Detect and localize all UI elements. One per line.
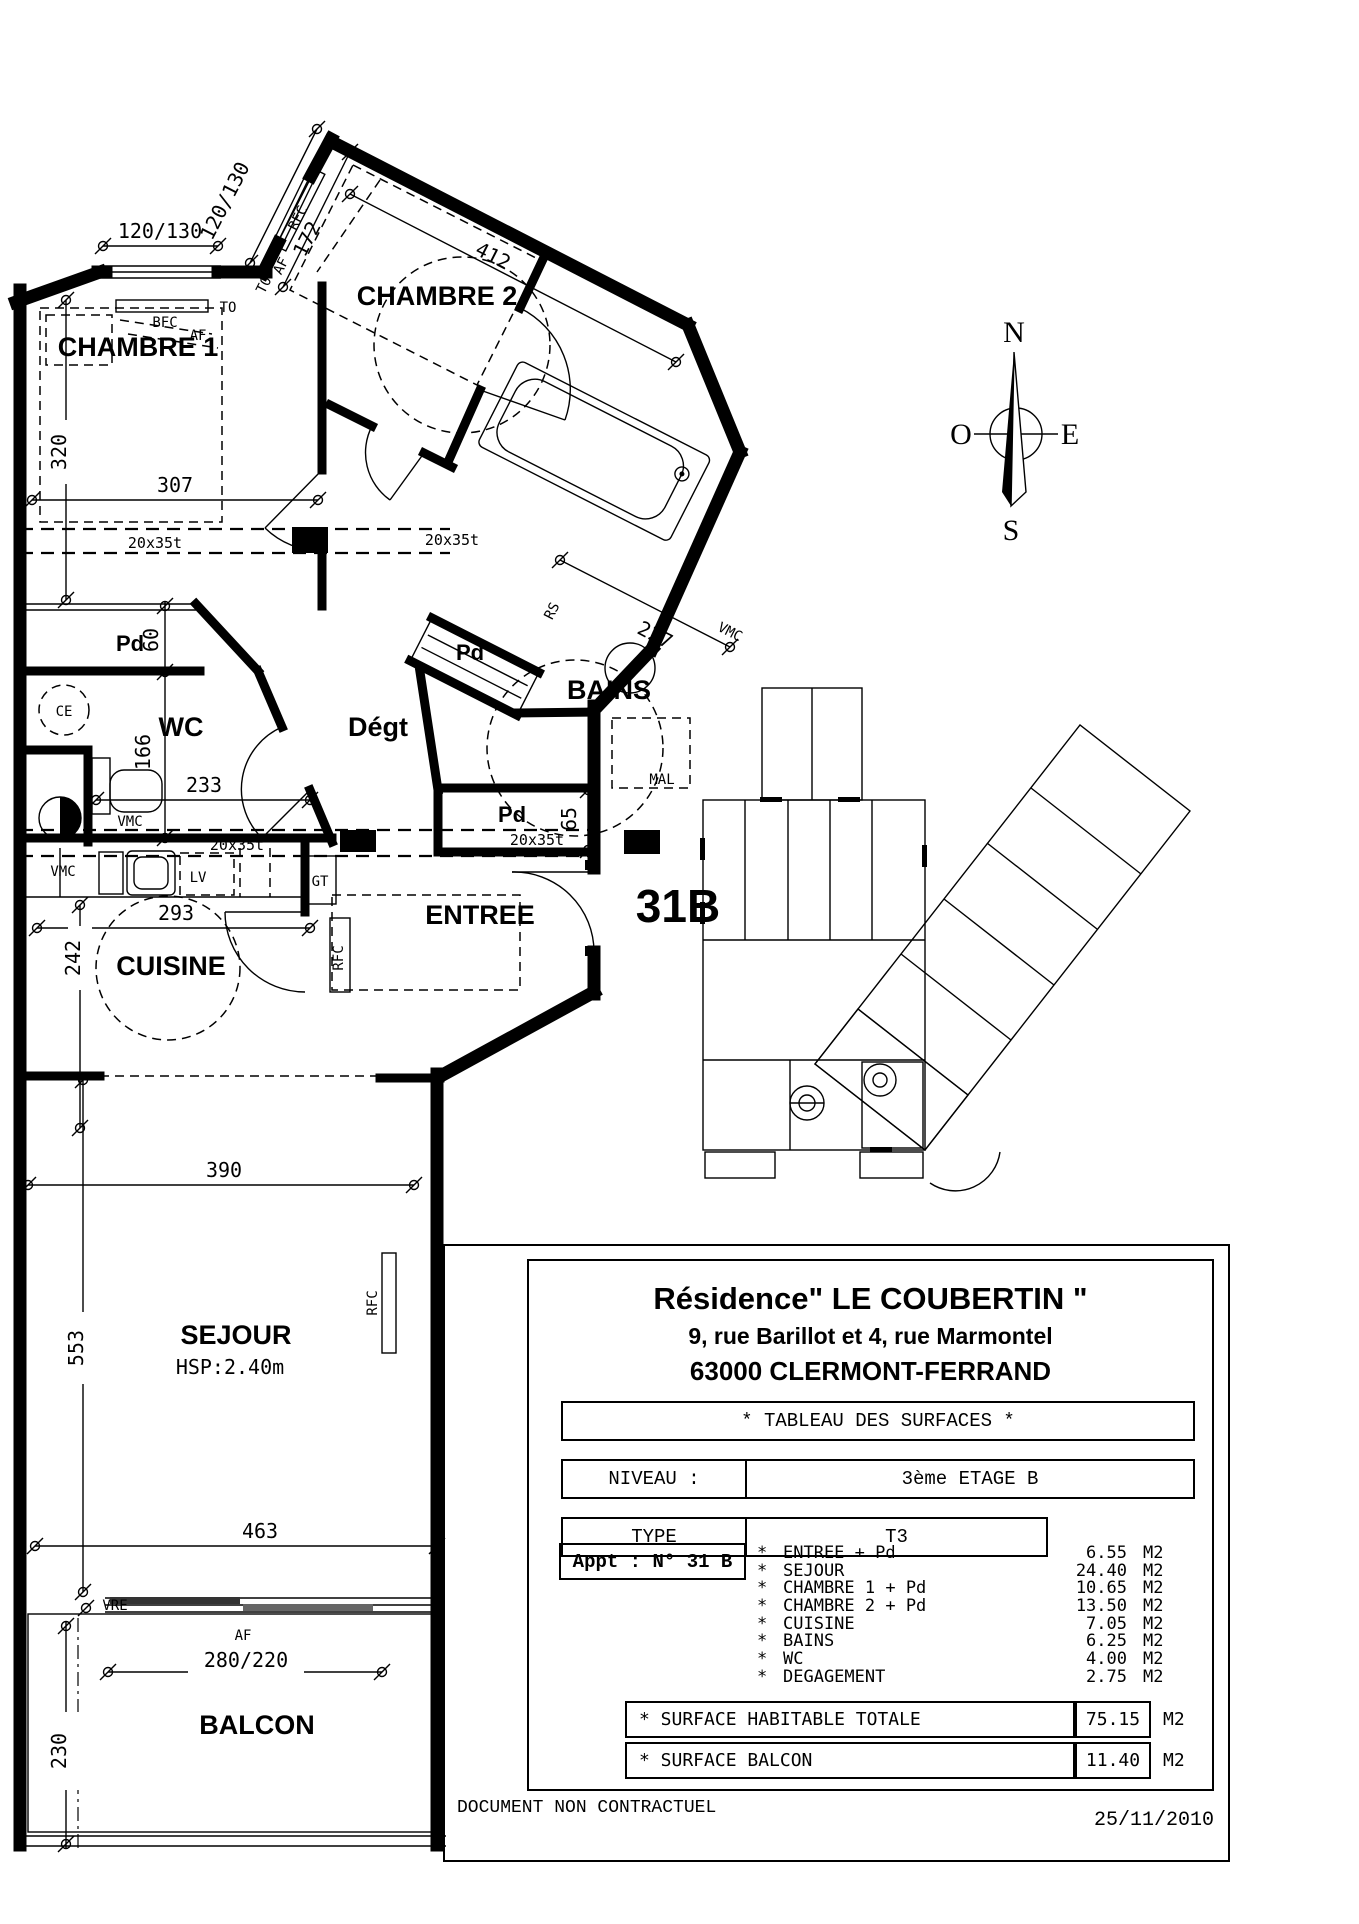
note-lv: LV: [190, 870, 207, 886]
niveau-value: 3ème ETAGE B: [747, 1468, 1193, 1490]
dim-320: 320: [47, 434, 71, 470]
compass-east: E: [1061, 418, 1079, 451]
apartment-number-box: Appt : N° 31 B: [559, 1543, 746, 1580]
room-label-chambre2: CHAMBRE 2: [357, 281, 518, 311]
note-bfc: BFC: [152, 315, 177, 331]
furniture: [40, 165, 663, 1040]
surfaces-table-header: * TABLEAU DES SURFACES *: [561, 1401, 1195, 1441]
apartment-number-label: Appt : N° 31 B: [573, 1551, 733, 1573]
room-label-wc: WC: [159, 712, 204, 742]
note-mal: MAL: [649, 772, 674, 788]
compass-west: O: [950, 418, 972, 451]
apartment-number: 31B: [636, 880, 720, 932]
dim-242: 242: [61, 940, 85, 976]
residence-name: Résidence" LE COUBERTIN ": [529, 1281, 1212, 1317]
dim-390: 390: [206, 1158, 242, 1182]
windows: [78, 168, 437, 1616]
note-to-chambre1: TO: [220, 300, 237, 316]
room-label-balcon: BALCON: [199, 1710, 315, 1740]
room-surface-list: * ENTREE + Pd 6.55 M2 * SEJOUR 24.40 M2 …: [757, 1545, 1185, 1687]
room-label-chambre1: CHAMBRE 1: [58, 332, 219, 362]
total-habitable-unit: M2: [1163, 1709, 1185, 1730]
total-balcon-unit: M2: [1163, 1750, 1185, 1771]
note-vmc-cuisine: VMC: [50, 864, 75, 880]
row-label: BAINS: [783, 1633, 1065, 1651]
room-label-sejour-height: HSP:2.40m: [176, 1355, 284, 1379]
note-rfc-sejour: RFC: [365, 1290, 381, 1315]
row-label: DEGAGEMENT: [783, 1669, 1065, 1687]
dim-window-chambre2: 120/130: [195, 158, 255, 244]
compass-south: S: [1003, 514, 1020, 547]
key-plan: [700, 688, 1190, 1191]
beam-label-1: 20x35t: [128, 534, 182, 552]
note-ce: CE: [56, 704, 73, 720]
room-label-bains: BAINS: [567, 675, 651, 705]
note-vre: VRE: [102, 1598, 127, 1614]
dim-463: 463: [242, 1519, 278, 1543]
document-date: 25/11/2010: [1094, 1809, 1214, 1832]
non-contractual-notice: DOCUMENT NON CONTRACTUEL: [457, 1798, 716, 1818]
note-gt: GT: [312, 874, 329, 890]
niveau-label: NIVEAU :: [563, 1461, 747, 1497]
row-unit: M2: [1127, 1669, 1185, 1687]
compass-rose: N O E S: [950, 316, 1079, 547]
surfaces-header-text: * TABLEAU DES SURFACES *: [741, 1410, 1015, 1432]
row-bullet: *: [757, 1669, 783, 1687]
floor-plan-sheet: 120/130 120/130 172 412 320 307 60 166 2…: [0, 0, 1359, 1924]
note-rs: RS: [541, 600, 563, 622]
closet-label-1: Pd: [116, 631, 144, 656]
residence-address: 9, rue Barillot et 4, rue Marmontel: [529, 1323, 1212, 1350]
title-block: Résidence" LE COUBERTIN " 9, rue Barillo…: [443, 1244, 1230, 1862]
closet-label-2: Pd: [456, 640, 484, 665]
row-value: 2.75: [1065, 1669, 1127, 1687]
dim-65: 65: [557, 807, 581, 831]
dim-balcony-window: 280/220: [204, 1648, 288, 1672]
room-label-entree: ENTREE: [425, 900, 535, 930]
room-label-cuisine: CUISINE: [116, 951, 226, 981]
total-habitable-label-box: * SURFACE HABITABLE TOTALE: [625, 1701, 1075, 1738]
note-af-sejour: AF: [235, 1628, 252, 1644]
doors: [225, 308, 594, 992]
sejour-radiator: [382, 1253, 396, 1353]
total-habitable-value: 75.15: [1086, 1709, 1140, 1730]
room-surface-row: * DEGAGEMENT 2.75 M2: [757, 1669, 1185, 1687]
dim-553: 553: [64, 1330, 88, 1366]
note-rfc-cuisine: RFC: [331, 945, 347, 970]
dim-166: 166: [131, 734, 155, 770]
title-block-inner: Résidence" LE COUBERTIN " 9, rue Barillo…: [527, 1259, 1214, 1791]
residence-city: 63000 CLERMONT-FERRAND: [529, 1356, 1212, 1387]
total-balcon-label-box: * SURFACE BALCON: [625, 1742, 1075, 1779]
dim-window-chambre1: 120/130: [118, 219, 202, 243]
total-balcon-label: * SURFACE BALCON: [639, 1750, 812, 1771]
beam-label-4: 20x35t: [510, 831, 564, 849]
beam-label-3: 20x35t: [210, 836, 264, 854]
dim-412: 412: [472, 237, 515, 275]
compass-north: N: [1003, 316, 1025, 349]
closet-degagement: [410, 618, 539, 715]
room-label-degagement: Dégt: [348, 712, 408, 742]
total-balcon-value-box: 11.40: [1075, 1742, 1151, 1779]
closet-label-3: Pd: [498, 802, 526, 827]
dim-307: 307: [157, 473, 193, 497]
total-habitable-label: * SURFACE HABITABLE TOTALE: [639, 1709, 921, 1730]
total-balcon-value: 11.40: [1086, 1750, 1140, 1771]
note-vmc-wc: VMC: [117, 814, 142, 830]
dim-293: 293: [158, 901, 194, 925]
beam-label-2: 20x35t: [425, 531, 479, 549]
total-habitable-value-box: 75.15: [1075, 1701, 1151, 1738]
room-label-sejour: SEJOUR: [180, 1320, 291, 1350]
niveau-row: NIVEAU : 3ème ETAGE B: [561, 1459, 1195, 1499]
dim-233: 233: [186, 773, 222, 797]
dim-230: 230: [47, 1733, 71, 1769]
